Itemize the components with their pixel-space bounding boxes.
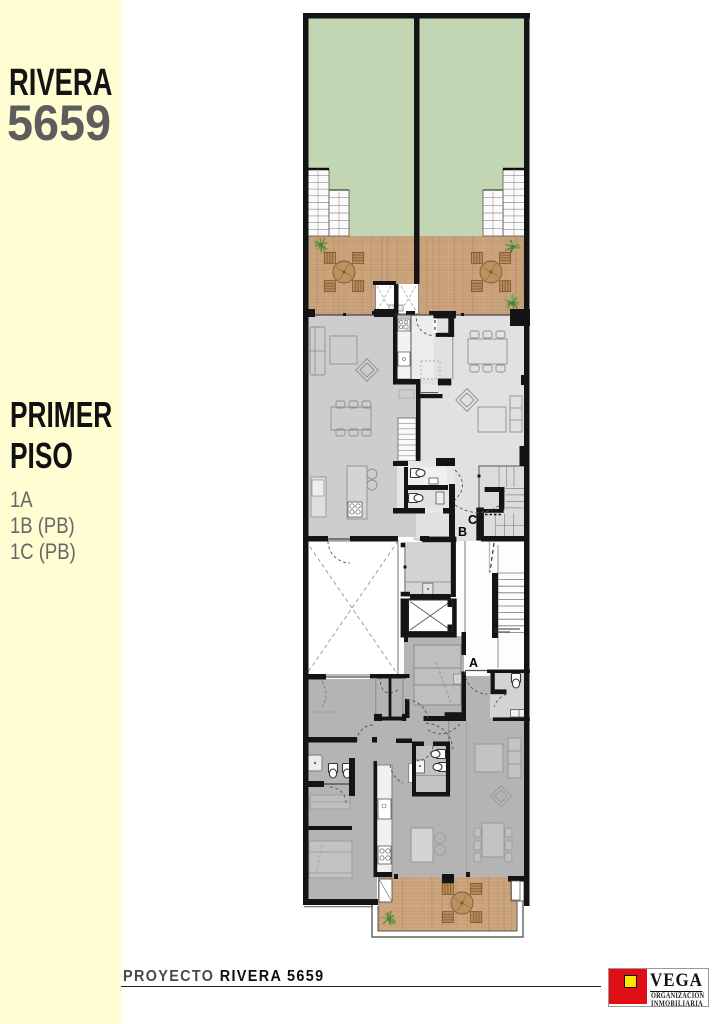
svg-text:A: A (469, 656, 478, 670)
svg-text:B: B (458, 525, 467, 539)
svg-text:C: C (468, 513, 477, 527)
